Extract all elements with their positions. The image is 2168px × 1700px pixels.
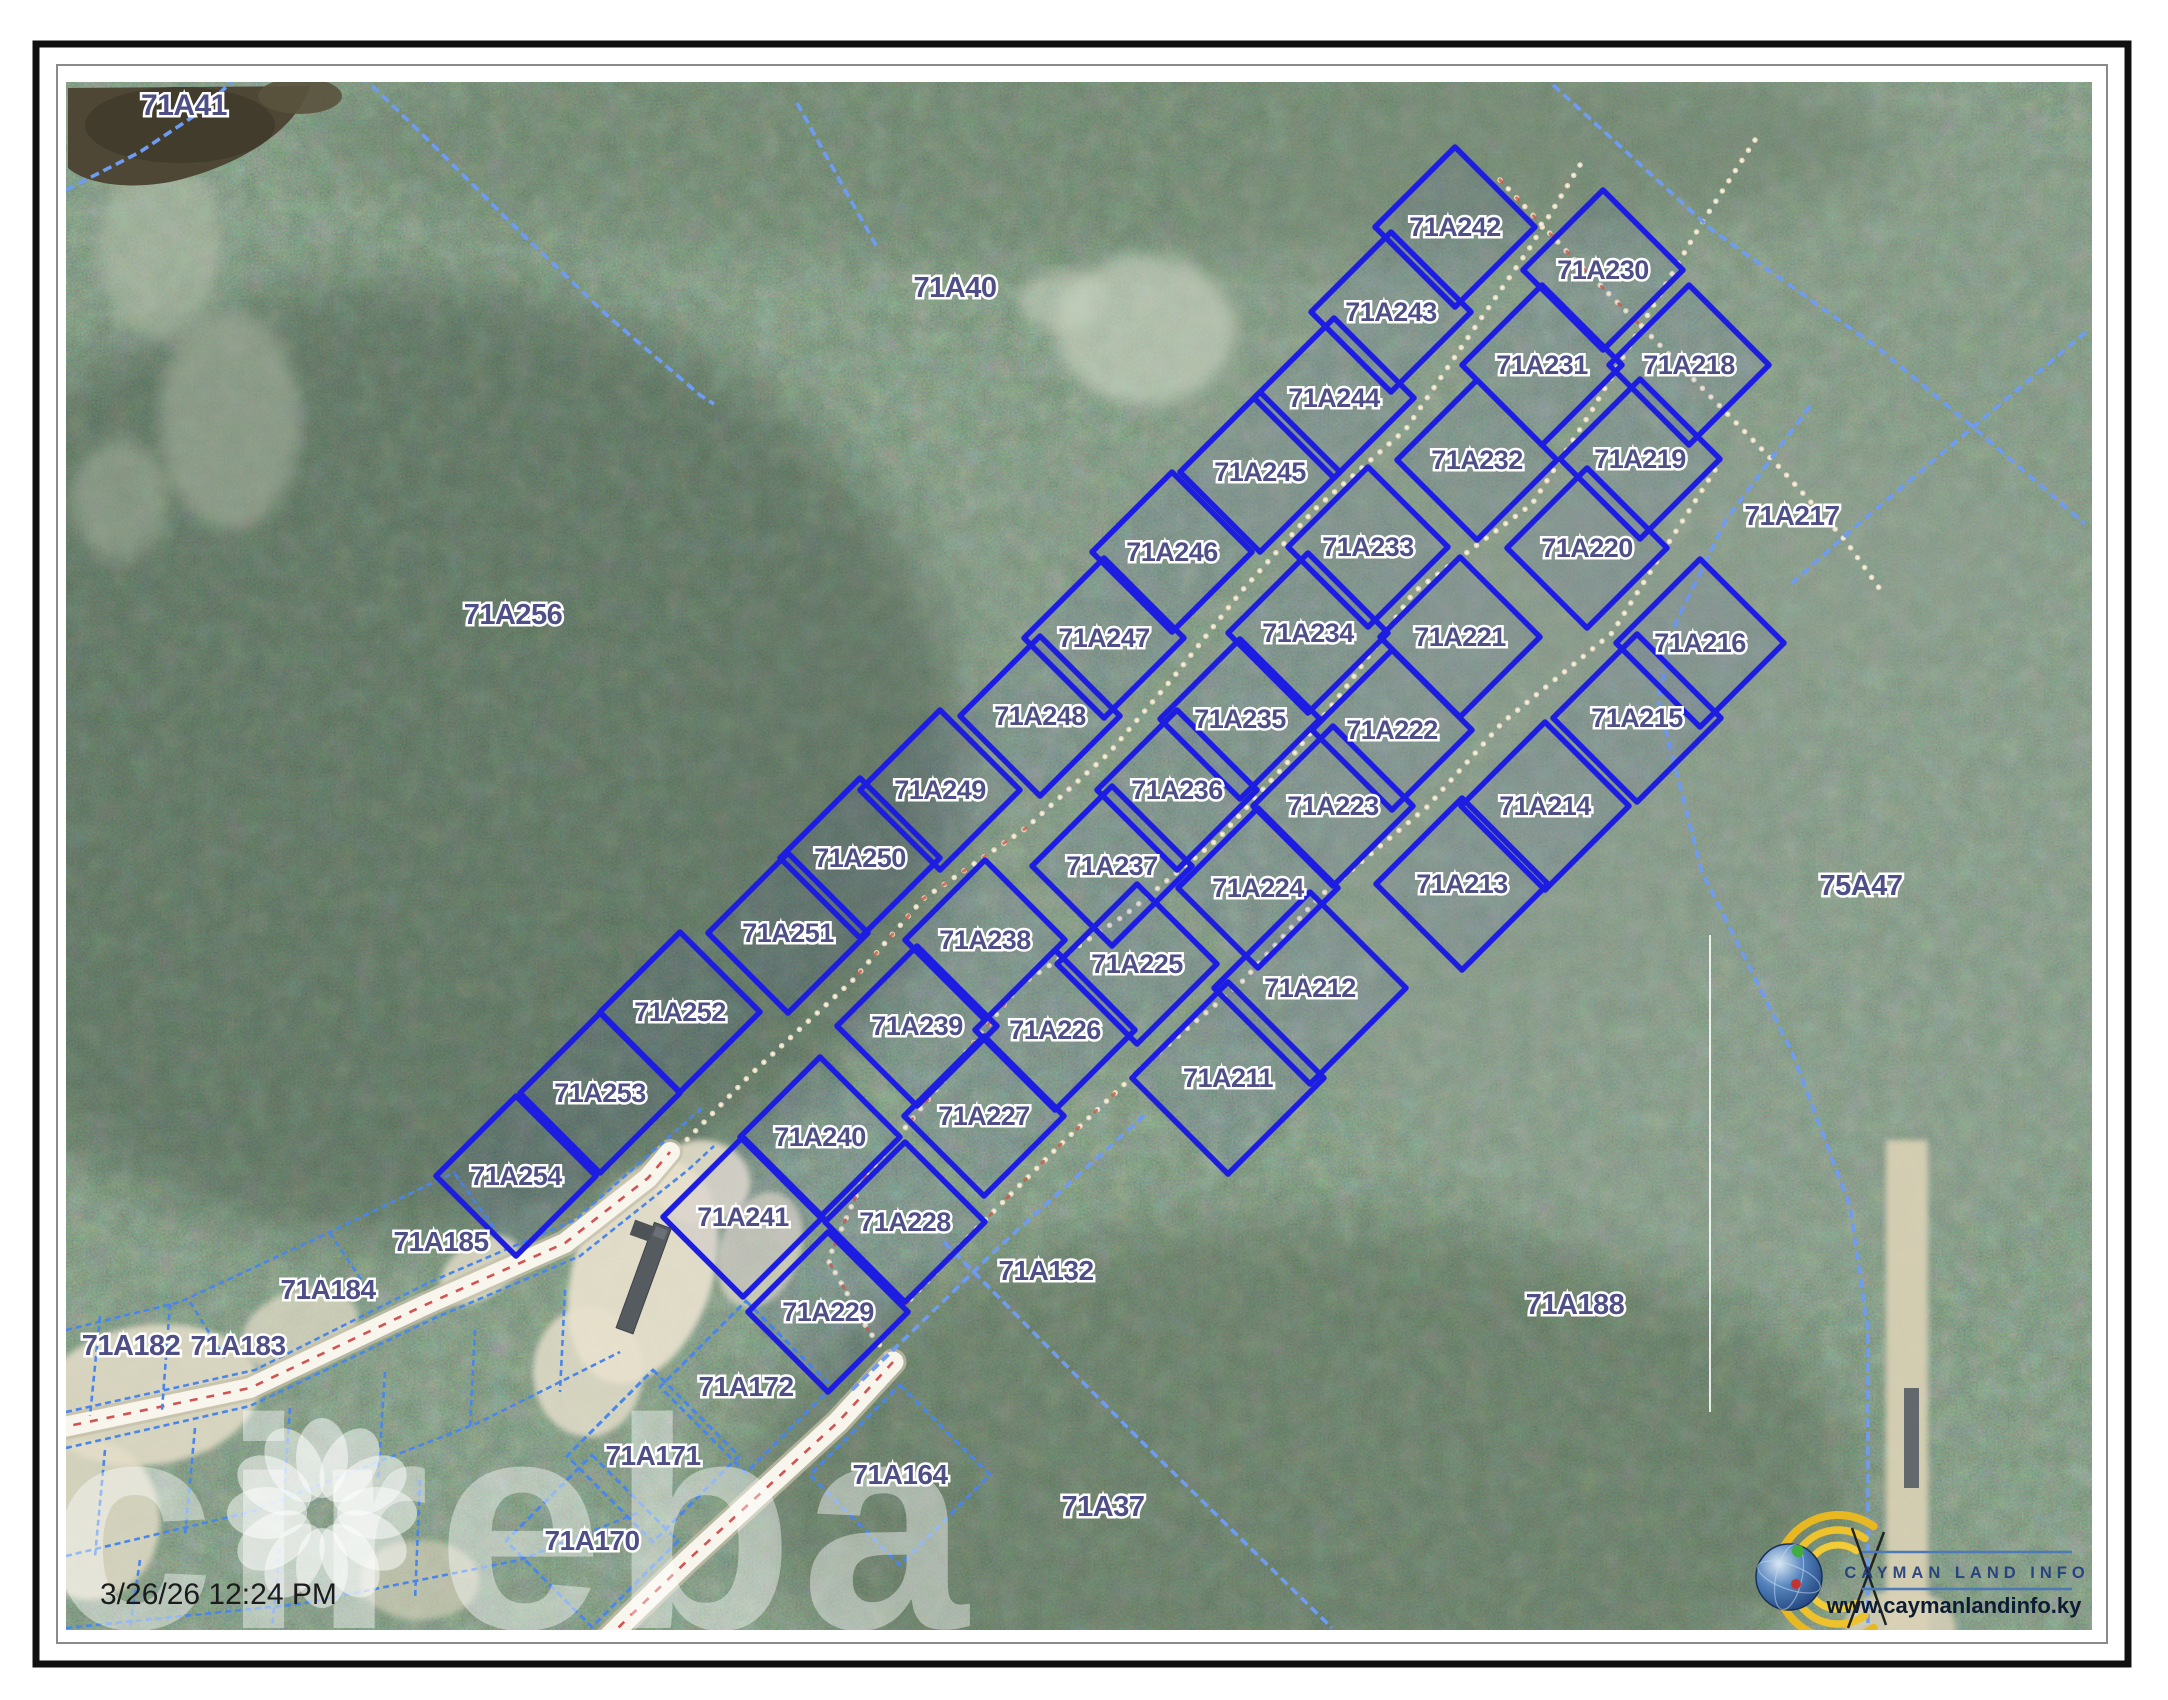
- cireba-watermark-text: cireba: [48, 1356, 978, 1692]
- parcel-label-71A37: 71A37: [1062, 1491, 1145, 1523]
- parcel-label-71A184: 71A184: [280, 1274, 376, 1305]
- parcel-label-71A221: 71A221: [1414, 622, 1506, 652]
- parcel-label-71A230: 71A230: [1557, 255, 1649, 285]
- map-content: cireba 71A24271A24371A24471A24571A24671A…: [0, 20, 2168, 1700]
- parcel-label-71A229: 71A229: [782, 1297, 874, 1327]
- parcel-label-71A237: 71A237: [1066, 851, 1158, 881]
- parcel-label-71A215: 71A215: [1591, 703, 1683, 733]
- parcel-label-71A242: 71A242: [1409, 212, 1501, 242]
- parcel-label-71A249: 71A249: [894, 775, 986, 805]
- parcel-label-71A219: 71A219: [1594, 444, 1686, 474]
- parcel-label-71A182: 71A182: [82, 1330, 181, 1362]
- parcel-label-71A223: 71A223: [1287, 791, 1379, 821]
- parcel-label-71A222: 71A222: [1346, 715, 1438, 745]
- logo-url: www.caymanlandinfo.ky: [1826, 1593, 2082, 1618]
- parcel-label-71A212: 71A212: [1264, 973, 1356, 1003]
- map-page: cireba 71A24271A24371A24471A24571A24671A…: [0, 0, 2168, 1700]
- parcel-label-71A218: 71A218: [1643, 350, 1735, 380]
- parcel-label-71A250: 71A250: [814, 843, 906, 873]
- parcel-label-71A239: 71A239: [871, 1011, 963, 1041]
- parcel-label-71A243: 71A243: [1345, 297, 1437, 327]
- parcel-label-71A185: 71A185: [393, 1226, 488, 1257]
- parcel-label-71A227: 71A227: [938, 1101, 1030, 1131]
- parcel-label-71A231: 71A231: [1496, 350, 1588, 380]
- sand-road-right-edge: [1886, 1140, 1928, 1632]
- parcel-label-71A247: 71A247: [1058, 623, 1150, 653]
- parcel-label-71A170: 71A170: [544, 1525, 639, 1556]
- parcel-label-71A256: 71A256: [464, 599, 563, 631]
- timestamp: 3/26/26 12:24 PM: [100, 1578, 337, 1611]
- parcel-label-71A226: 71A226: [1009, 1015, 1101, 1045]
- parcel-label-71A244: 71A244: [1288, 383, 1380, 413]
- parcel-label-71A236: 71A236: [1131, 775, 1223, 805]
- parcel-label-75A47: 75A47: [1820, 870, 1903, 902]
- parcel-label-71A164: 71A164: [852, 1459, 948, 1490]
- parcel-label-71A232: 71A232: [1431, 445, 1523, 475]
- parcel-label-71A235: 71A235: [1194, 704, 1286, 734]
- cadastral-aerial-map: cireba 71A24271A24371A24471A24571A24671A…: [0, 0, 2168, 1700]
- parcel-label-71A216: 71A216: [1654, 628, 1746, 658]
- parcel-label-71A213: 71A213: [1416, 869, 1508, 899]
- parcel-label-71A225: 71A225: [1091, 949, 1183, 979]
- logo-title: CAYMAN LAND INFO: [1844, 1564, 2089, 1582]
- logo-green-dot: [1792, 1545, 1804, 1557]
- parcel-label-71A248: 71A248: [994, 701, 1086, 731]
- parcel-label-71A228: 71A228: [859, 1207, 951, 1237]
- parcel-label-71A217: 71A217: [1744, 500, 1839, 531]
- cireba-watermark: cireba: [48, 1356, 978, 1692]
- parcel-label-71A241: 71A241: [697, 1202, 789, 1232]
- parcel-label-71A252: 71A252: [634, 997, 726, 1027]
- parcel-label-71A172: 71A172: [698, 1371, 793, 1402]
- parcel-label-71A224: 71A224: [1212, 873, 1304, 903]
- parcel-label-71A183: 71A183: [190, 1330, 285, 1361]
- parcel-label-71A254: 71A254: [470, 1161, 562, 1191]
- parcel-label-71A132: 71A132: [998, 1255, 1093, 1286]
- parcel-label-71A214: 71A214: [1499, 791, 1591, 821]
- parcel-label-71A238: 71A238: [939, 925, 1031, 955]
- parcel-label-71A171: 71A171: [605, 1440, 700, 1471]
- parcel-label-71A220: 71A220: [1541, 533, 1633, 563]
- parcel-label-71A240: 71A240: [774, 1122, 866, 1152]
- parcel-label-71A211: 71A211: [1183, 1063, 1274, 1093]
- parcel-label-71A253: 71A253: [554, 1078, 646, 1108]
- parcel-label-71A233: 71A233: [1322, 532, 1414, 562]
- parcel-label-71A40: 71A40: [914, 272, 997, 304]
- parcel-label-71A188: 71A188: [1526, 1289, 1625, 1321]
- logo-red-dot: [1791, 1579, 1801, 1589]
- parcel-label-71A245: 71A245: [1214, 457, 1306, 487]
- parcel-label-71A234: 71A234: [1262, 618, 1354, 648]
- dark-object-right-edge: [1904, 1388, 1919, 1488]
- parcel-label-71A41: 71A41: [141, 89, 227, 122]
- parcel-label-71A251: 71A251: [742, 918, 834, 948]
- parcel-label-71A246: 71A246: [1126, 537, 1218, 567]
